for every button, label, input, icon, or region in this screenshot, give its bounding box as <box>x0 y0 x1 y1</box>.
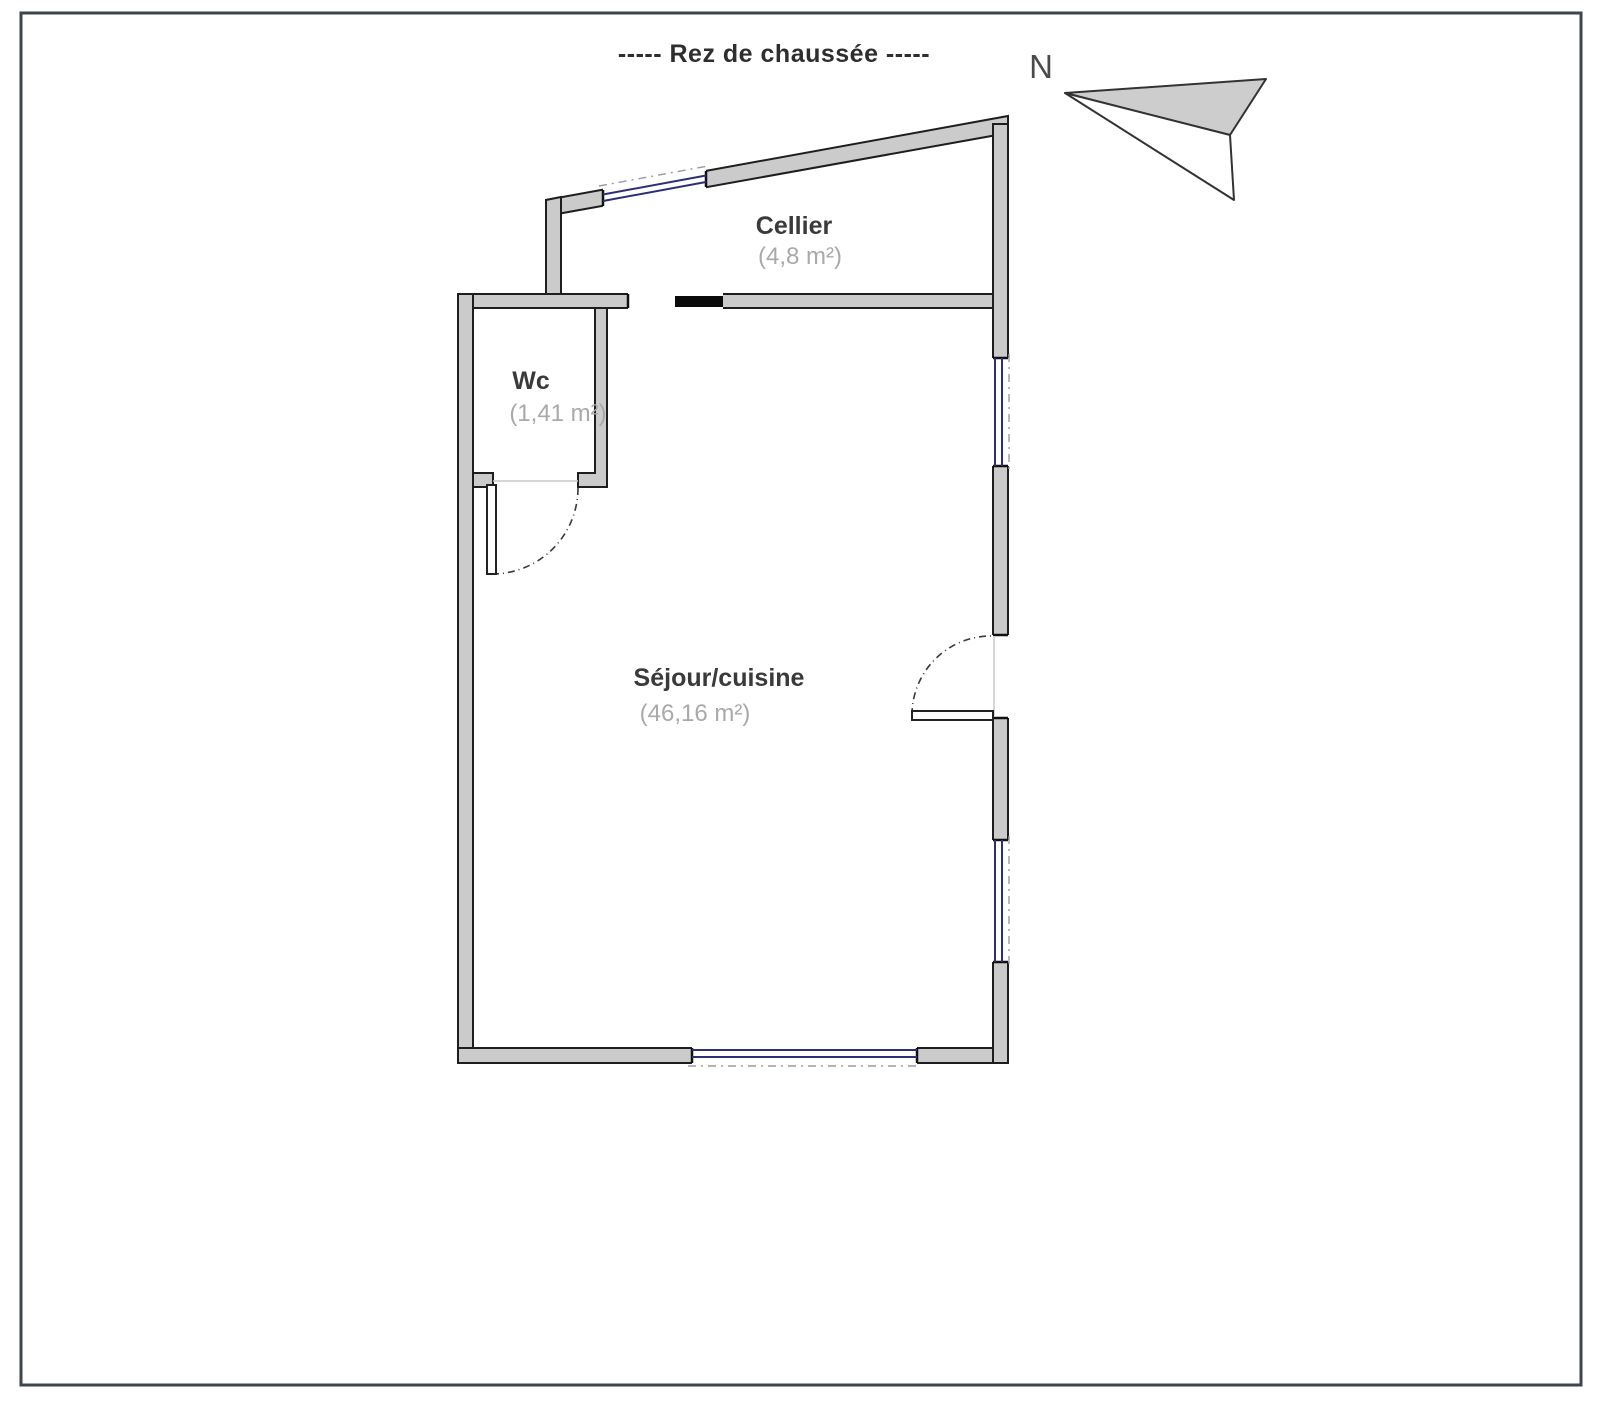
floor-plan-page: ----- Rez de chaussée ----- N <box>0 0 1600 1410</box>
room-area-sejour: (46,16 m²) <box>640 700 751 727</box>
room-label-cellier: Cellier (4,8 m²) <box>756 212 842 270</box>
room-label-wc: Wc (1,41 m²) <box>509 367 606 427</box>
north-compass: N <box>1029 48 1266 200</box>
wall-wc-right <box>578 308 607 487</box>
room-name-wc: Wc <box>512 367 550 395</box>
room-area-wc: (1,41 m²) <box>509 400 606 427</box>
room-name-sejour: Séjour/cuisine <box>634 664 805 692</box>
opening-window-1 <box>991 358 1010 466</box>
walls <box>458 116 1008 1063</box>
plan-title: ----- Rez de chaussée ----- <box>618 40 930 68</box>
room-label-sejour: Séjour/cuisine (46,16 m²) <box>634 664 805 727</box>
wall-cellier-left <box>546 197 561 308</box>
entry-door-icon <box>912 636 994 720</box>
opening-window-2 <box>991 840 1010 962</box>
wc-door-icon <box>487 481 578 574</box>
room-name-cellier: Cellier <box>756 212 833 240</box>
opening-cellier-window <box>603 168 706 211</box>
opening-window-bottom <box>692 1046 917 1065</box>
north-label: N <box>1029 48 1053 85</box>
cellier-passage-black-bar <box>675 296 723 307</box>
room-area-cellier: (4,8 m²) <box>758 243 842 270</box>
wall-left-exterior <box>458 294 473 1063</box>
wall-horizontal-band <box>458 294 995 308</box>
floor-plan-canvas: ----- Rez de chaussée ----- N <box>0 0 1600 1410</box>
